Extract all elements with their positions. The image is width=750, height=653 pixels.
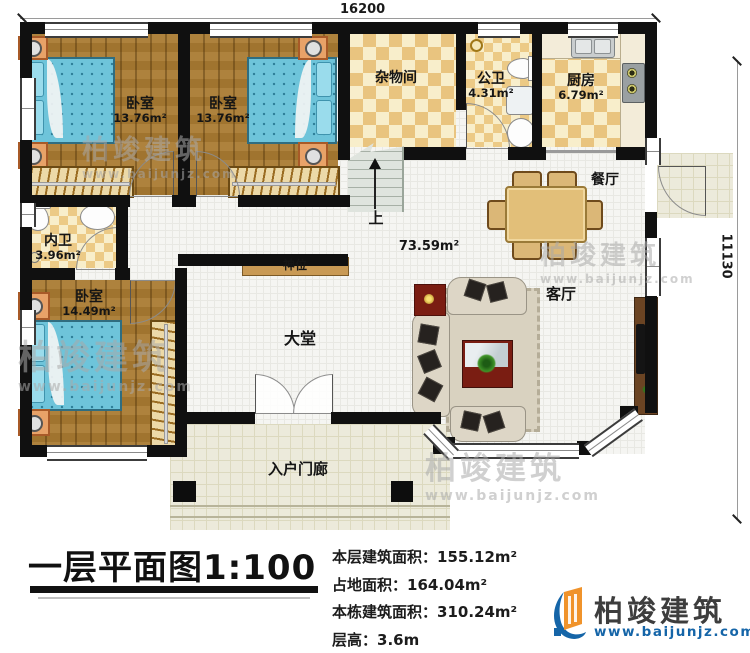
room-label-hall: 大堂 bbox=[284, 331, 316, 346]
wall-hall-south-right bbox=[331, 412, 441, 424]
stairs-up-arrow-line bbox=[374, 167, 376, 209]
sofa-cushion-6 bbox=[460, 410, 481, 431]
stat-line-4: 层高：3.6m bbox=[332, 629, 419, 650]
room-label-living: 客厅 bbox=[546, 287, 576, 302]
room-label-public-bath: 公卫 4.31m² bbox=[468, 72, 513, 100]
room-label-storage: 杂物间 bbox=[375, 71, 417, 86]
window-bedroom2-north bbox=[210, 22, 312, 38]
dimension-top-label: 16200 bbox=[340, 2, 385, 17]
window-bedroom3-west bbox=[20, 310, 36, 345]
bay-window-south bbox=[453, 443, 579, 459]
stat-line-2: 占地面积：164.04m² bbox=[332, 574, 487, 595]
coffee-table-plant-icon bbox=[477, 354, 496, 373]
page-title: 一层平面图1:100 bbox=[28, 540, 316, 589]
wall-north-south-b bbox=[508, 147, 546, 160]
bed2-pillow-bottom bbox=[316, 100, 332, 135]
ensuite-sink-icon bbox=[80, 204, 115, 230]
porch-step-line1 bbox=[170, 505, 450, 507]
stat-line-1: 本层建筑面积：155.12m² bbox=[332, 546, 517, 567]
window-ensuite-west bbox=[20, 203, 36, 227]
stat-line-3: 本栋建筑面积：310.24m² bbox=[332, 601, 517, 622]
wall-bedroom2-storage bbox=[338, 22, 350, 160]
wall-bedrooms-south-b bbox=[172, 195, 196, 207]
stairs-up-label: 上 bbox=[368, 211, 383, 226]
dimension-right-label: 11130 bbox=[719, 234, 734, 286]
wall-bedrooms-south-c bbox=[238, 195, 350, 207]
room-label-bedroom1: 卧室 13.76m² bbox=[113, 97, 166, 125]
porch-column-right bbox=[391, 481, 413, 502]
dimension-line-top bbox=[20, 18, 657, 19]
room-label-bedroom2: 卧室 13.76m² bbox=[196, 97, 249, 125]
title-underline-thick bbox=[30, 586, 318, 593]
porch-step-line2 bbox=[170, 516, 450, 518]
sofa-cushion-3 bbox=[417, 323, 439, 345]
floor-plan: 卧室 13.76m² 卧室 13.76m² 杂物间 公卫 4.31m² 厨房 6… bbox=[0, 0, 750, 653]
stairs-up-arrow-head bbox=[369, 158, 381, 169]
wall-bath-kitchen bbox=[532, 22, 542, 160]
bed2-nightstand-top bbox=[298, 36, 328, 60]
bed2-pillow-top bbox=[316, 62, 332, 97]
sofa-top-section bbox=[447, 277, 527, 315]
storage-floor bbox=[350, 34, 456, 147]
bedroom1-wardrobe bbox=[22, 166, 134, 198]
title-underline-thin bbox=[38, 597, 310, 599]
door-stop-icon bbox=[470, 39, 483, 52]
wall-bedroom3-ne bbox=[175, 268, 187, 280]
room-label-shrine: 神位 bbox=[283, 258, 307, 272]
room-label-kitchen: 厨房 6.79m² bbox=[558, 74, 603, 102]
dining-table bbox=[505, 186, 587, 243]
window-dining-east bbox=[645, 138, 661, 165]
dimension-line-right bbox=[737, 60, 738, 520]
room-label-entry-porch: 入户门廊 bbox=[268, 462, 328, 477]
stove-burner-top bbox=[627, 68, 637, 78]
bedroom3-wardrobe bbox=[150, 320, 178, 448]
wall-ensuite-south-b bbox=[115, 268, 130, 280]
kitchen-sink-bowl-left bbox=[575, 39, 592, 54]
window-bedroom1-west bbox=[20, 78, 36, 140]
kitchen-threshold bbox=[546, 150, 616, 153]
stove-burner-bottom bbox=[627, 84, 637, 94]
wall-bedrooms-south-a bbox=[20, 195, 130, 207]
wall-north-south-a bbox=[404, 147, 466, 160]
side-table-lamp-icon bbox=[424, 294, 434, 304]
tv-icon bbox=[636, 324, 645, 374]
window-kitchen-north bbox=[568, 22, 618, 38]
bedroom2-wardrobe bbox=[228, 166, 340, 198]
bed2-nightstand-bottom bbox=[298, 142, 328, 169]
room-label-bedroom3: 卧室 14.49m² bbox=[62, 290, 115, 318]
company-logo-icon bbox=[548, 584, 590, 642]
wall-storage-bath bbox=[456, 22, 466, 110]
room-label-ensuite: 内卫 3.96m² bbox=[35, 234, 80, 262]
company-logo-url: www.baijunjz.com bbox=[594, 624, 750, 640]
public-sink-icon bbox=[507, 118, 535, 148]
room-label-dining: 餐厅 bbox=[591, 173, 619, 188]
wall-ensuite-south-a bbox=[20, 268, 75, 280]
window-bedroom1-north bbox=[45, 22, 148, 38]
wall-bedroom3-right bbox=[175, 280, 187, 457]
kitchen-sink-bowl-right bbox=[594, 39, 611, 54]
wall-hall-south-left bbox=[185, 412, 255, 424]
wall-shrine bbox=[178, 254, 348, 266]
wall-bedroom1-2 bbox=[178, 22, 190, 198]
open-area-label: 73.59m² bbox=[399, 240, 459, 253]
porch-column-left bbox=[173, 481, 196, 502]
window-bedroom3-south bbox=[47, 445, 147, 461]
window-bath-north bbox=[478, 22, 520, 38]
window-living-east bbox=[645, 238, 661, 296]
